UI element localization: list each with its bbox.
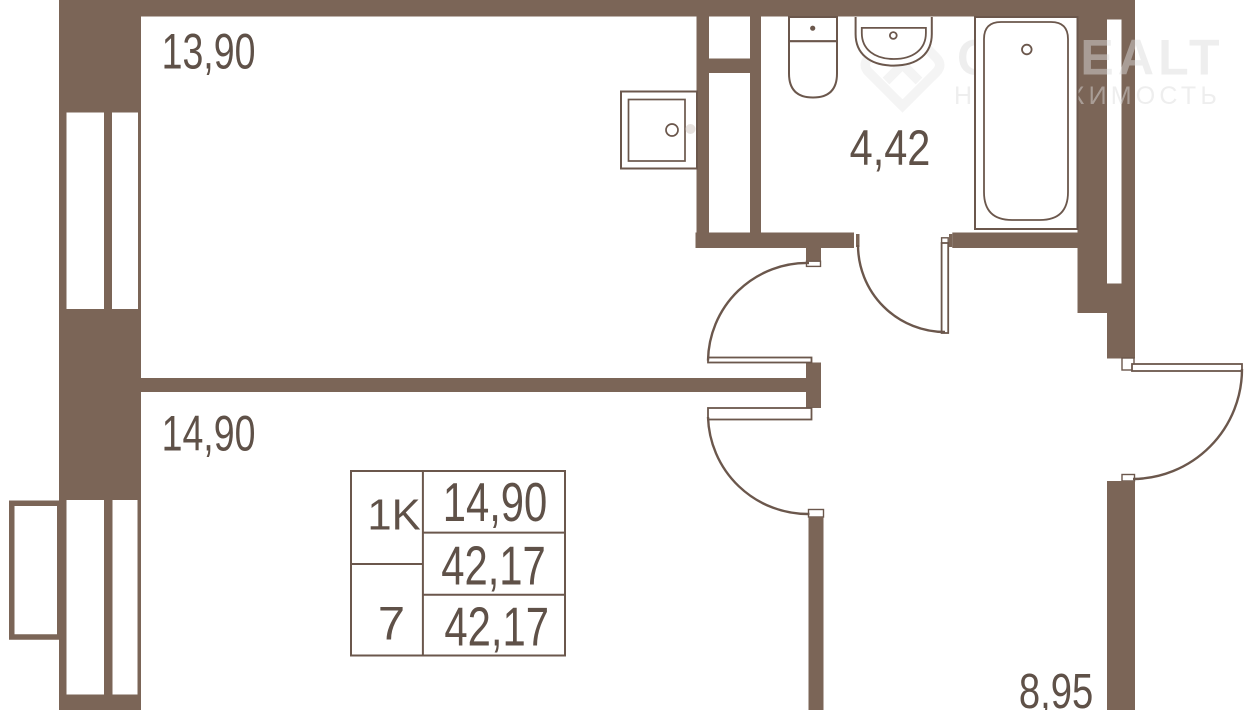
svg-text:4,42: 4,42 [850,119,931,176]
svg-text:14,90: 14,90 [443,473,548,534]
svg-text:1K: 1K [367,490,420,539]
svg-text:13,90: 13,90 [162,24,256,79]
svg-text:7: 7 [378,598,405,650]
svg-text:42,17: 42,17 [444,597,549,658]
svg-text:42,17: 42,17 [441,536,546,597]
svg-text:14,90: 14,90 [162,406,256,461]
svg-text:8,95: 8,95 [1019,665,1093,710]
